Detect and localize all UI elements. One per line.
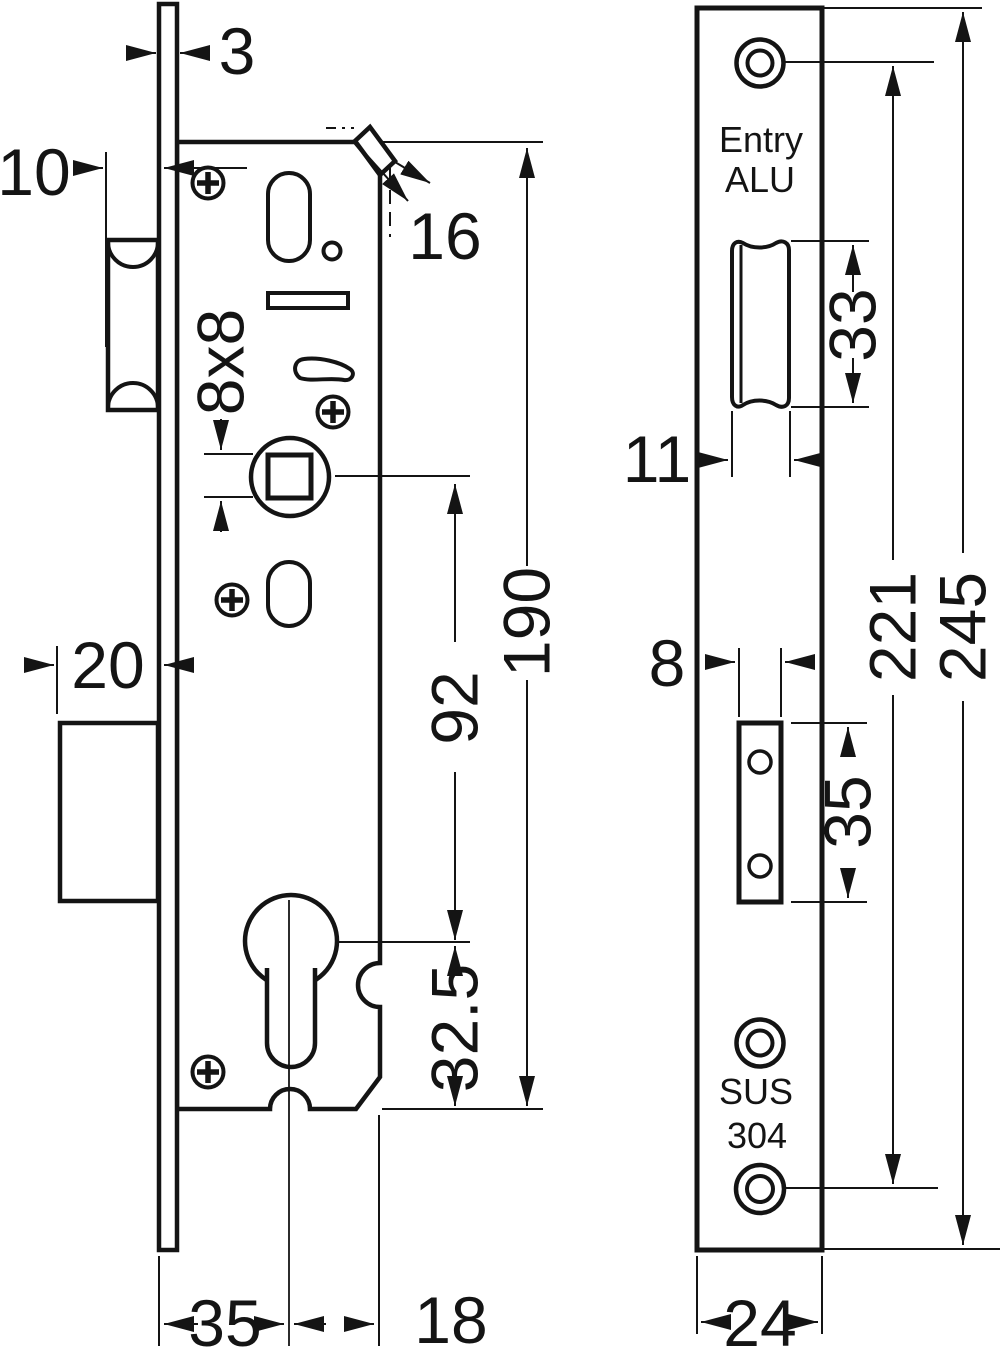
svg-text:16: 16 [408,199,481,273]
svg-text:245: 245 [925,572,999,682]
svg-text:8: 8 [649,626,686,700]
lock-technical-drawing: 3 10 16 8x8 20 [0,0,1000,1361]
plate-screw-bottom-lower [736,1165,784,1213]
plate-screw-top [737,40,784,87]
case-screw-mid-left [217,585,248,616]
cylinder-keyway [267,968,315,1067]
dim-faceplate-thickness: 3 [126,14,255,88]
svg-text:24: 24 [723,1286,796,1360]
svg-text:35: 35 [810,775,884,848]
svg-text:10: 10 [0,135,71,209]
case-screw-mid-right [318,397,349,428]
case-slot-hole [268,293,348,308]
front-view: Entry ALU 33 11 8 [623,8,1000,1360]
case-screw-top-left [193,168,224,199]
svg-text:18: 18 [414,1283,487,1357]
spindle-square-hole [268,455,311,498]
dim-backset-and-back: 35 18 [159,1115,488,1360]
dim-plate-width: 24 [697,1256,822,1360]
plate-label-line2: ALU [725,159,795,200]
case-oval-hole-top [268,173,310,261]
svg-text:35: 35 [188,1286,261,1360]
svg-text:92: 92 [417,671,491,744]
dim-case-height: 190 [489,148,563,1106]
svg-text:190: 190 [489,567,563,677]
dim-plate-height: 245 [925,12,999,1245]
faceplate-edge [159,4,177,1250]
svg-text:20: 20 [71,628,144,702]
case-small-hole [324,243,341,260]
side-view: 3 10 16 8x8 20 [0,4,563,1360]
plate-screw-bottom-upper [737,1020,784,1067]
material-line1: SUS [719,1071,793,1112]
drawing-canvas: 3 10 16 8x8 20 [0,0,1000,1361]
deadbolt-cutout [739,723,781,902]
material-line2: 304 [727,1115,787,1156]
svg-text:11: 11 [623,422,692,496]
svg-text:8x8: 8x8 [183,309,257,415]
svg-text:33: 33 [815,288,889,361]
deadbolt [60,723,158,901]
svg-text:221: 221 [855,572,929,682]
case-oval-hole-mid [268,562,310,626]
svg-text:32.5: 32.5 [417,964,491,1092]
case-screw-bottom [193,1057,224,1088]
deadbolt-pin-hole-top [749,751,771,773]
deadbolt-pin-hole-bottom [749,855,771,877]
svg-text:3: 3 [219,14,256,88]
plate-label-line1: Entry [719,119,803,160]
